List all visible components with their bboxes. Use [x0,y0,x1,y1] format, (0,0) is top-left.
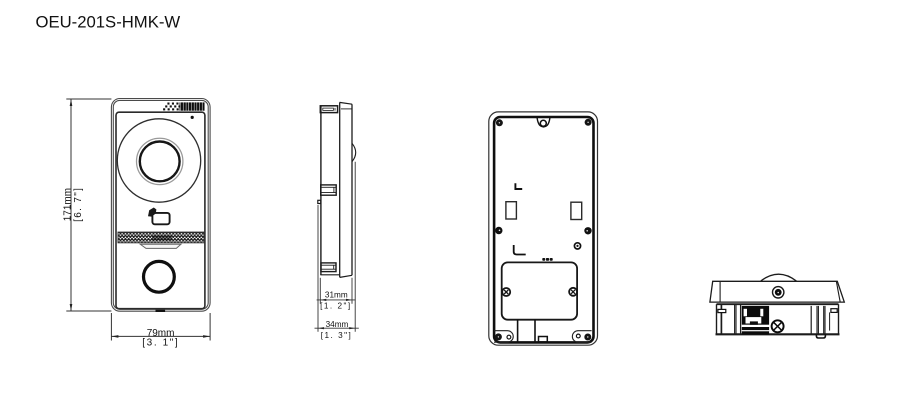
svg-text:171mm: 171mm [62,188,73,221]
svg-text:OEU-201S-HMK-W: OEU-201S-HMK-W [36,13,181,32]
svg-text:[1. 3"]: [1. 3"] [321,331,353,340]
svg-text:[6. 7"]: [6. 7"] [73,187,84,222]
svg-text:[1. 2"]: [1. 2"] [320,302,352,311]
svg-text:[3. 1"]: [3. 1"] [142,338,179,349]
svg-text:34mm: 34mm [326,320,349,329]
svg-text:31mm: 31mm [325,291,348,300]
